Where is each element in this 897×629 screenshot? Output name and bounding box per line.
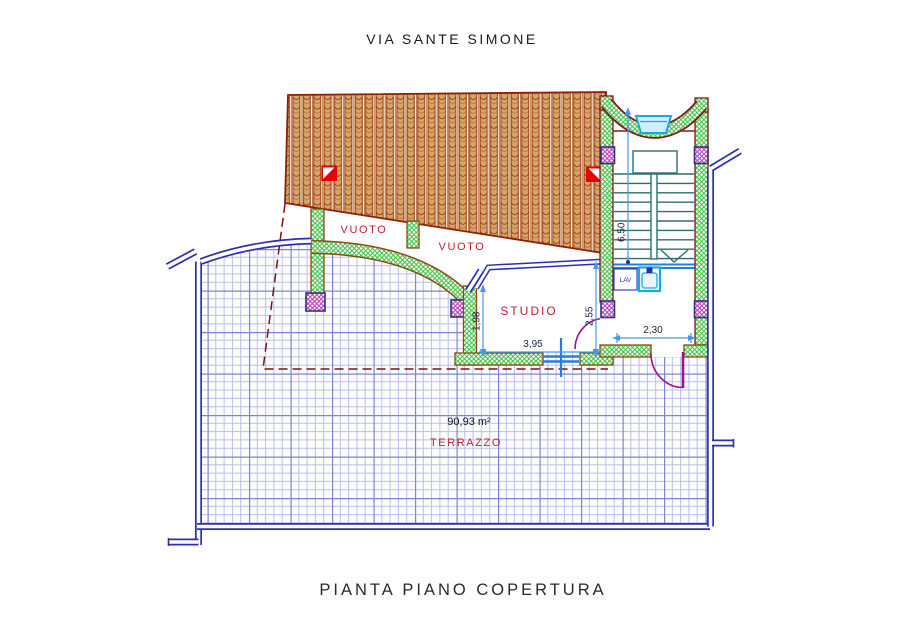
stair-wall-bottom-left <box>600 345 651 357</box>
studio-wall-bottom-left <box>455 353 543 365</box>
vuoto-left-label: VUOTO <box>341 224 388 236</box>
dim-stairwell: 6,50 <box>617 222 628 242</box>
pillar <box>695 147 709 164</box>
roof <box>285 92 606 254</box>
skylight-right <box>586 167 602 183</box>
dim-hall-width: 2,30 <box>643 325 663 336</box>
wall-stub-mid <box>407 221 419 248</box>
pillar <box>601 147 615 164</box>
studio-label: STUDIO <box>500 304 557 318</box>
lav-cabinet: LAV <box>614 269 637 290</box>
floor-plan-canvas: STUDIO LAV <box>0 0 897 629</box>
sink-fixture <box>639 268 660 292</box>
plan-title: PIANTA PIANO COPERTURA <box>319 581 606 599</box>
stair-stringer <box>651 174 657 259</box>
pillar <box>306 293 325 311</box>
dim-studio-right: 2,55 <box>585 306 596 326</box>
stair-wall-left <box>600 107 613 302</box>
lav-label: LAV <box>620 277 632 284</box>
stair-window <box>636 116 671 133</box>
vuoto-right-label: VUOTO <box>439 241 486 253</box>
skylight-left <box>322 166 338 182</box>
terrazzo-label: TERRAZZO <box>430 437 502 449</box>
dim-studio-left: 1,98 <box>472 311 483 331</box>
street-title: VIA SANTE SIMONE <box>366 31 537 47</box>
railing-left <box>169 262 199 547</box>
stair-wall-bottom-right <box>684 345 710 357</box>
railing-right <box>711 151 741 527</box>
pillar <box>695 301 709 318</box>
terrazzo-area-label: 90,93 m² <box>447 416 491 428</box>
dim-studio-width: 3,95 <box>523 339 543 350</box>
drawing-sheet: STUDIO LAV <box>0 0 897 629</box>
pillar <box>601 301 615 318</box>
